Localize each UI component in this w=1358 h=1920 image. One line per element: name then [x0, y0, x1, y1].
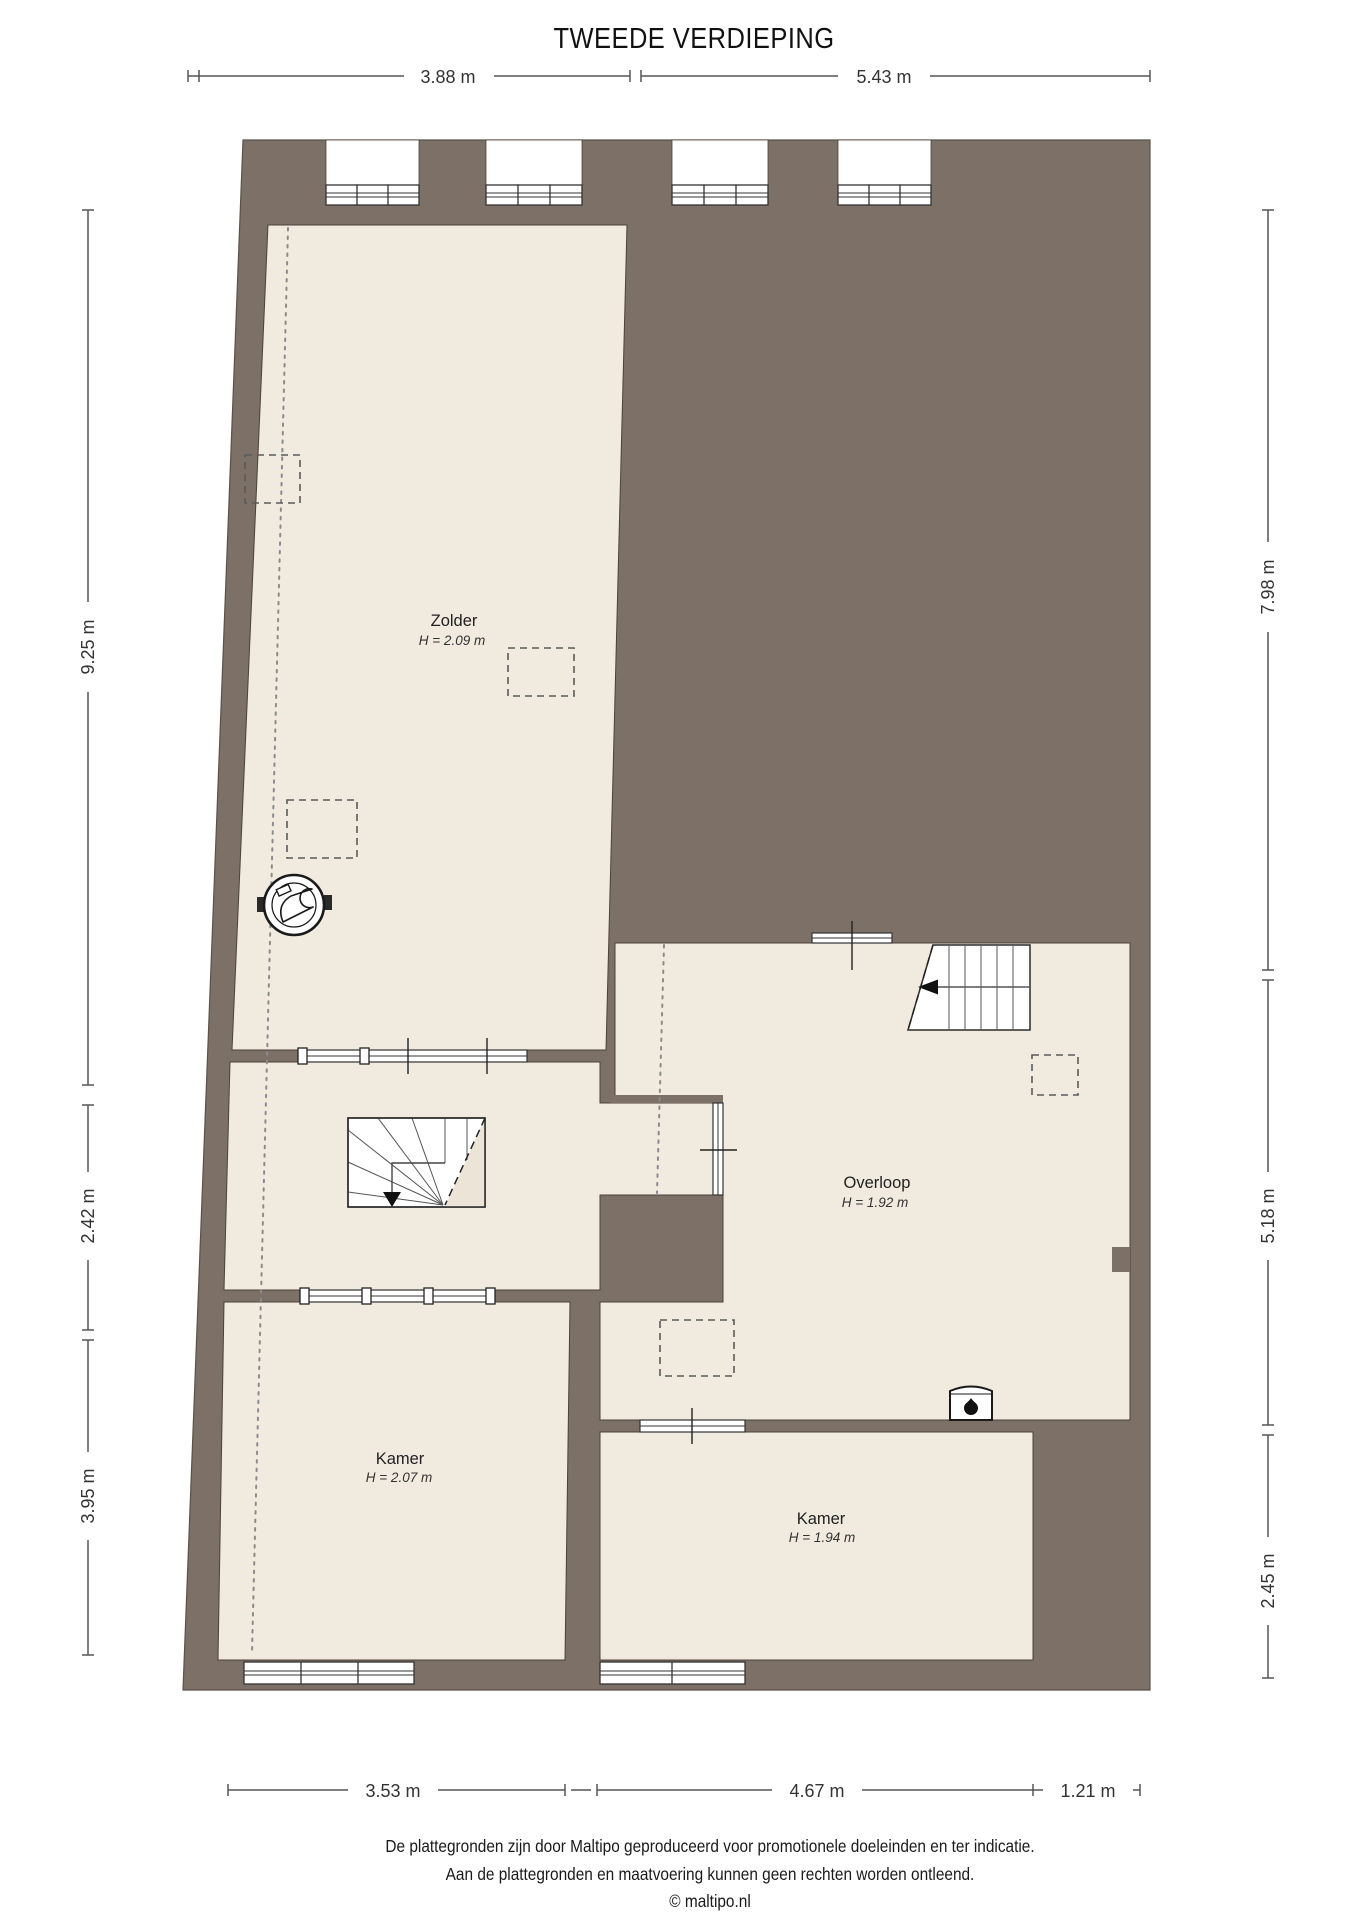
- footer-line-2: Aan de plattegronden en maatvoering kunn…: [446, 1865, 975, 1884]
- dim-label-bottom-1: 3.53 m: [365, 1781, 420, 1801]
- room-label-kamer-left: Kamer: [376, 1450, 425, 1468]
- room-label-overloop: Overloop: [844, 1174, 911, 1192]
- room-label-kamer-right: Kamer: [797, 1510, 846, 1528]
- wood-stove-icon: [950, 1387, 992, 1421]
- room-height-kamer-left: H = 2.07 m: [366, 1470, 432, 1485]
- dim-label-left-3: 3.95 m: [78, 1468, 98, 1523]
- dim-label-top-2: 5.43 m: [856, 67, 911, 87]
- window-glazing: [486, 140, 582, 205]
- dim-label-bottom-2: 4.67 m: [789, 1781, 844, 1801]
- kamer-right-floor: [600, 1432, 1033, 1660]
- dim-label-right-3: 2.45 m: [1258, 1553, 1278, 1608]
- room-label-zolder: Zolder: [431, 612, 478, 630]
- staircase-winder-icon: [348, 1118, 485, 1207]
- window-glazing: [300, 1288, 495, 1304]
- dim-label-bottom-3: 1.21 m: [1060, 1781, 1115, 1801]
- floor-plan-page: TWEEDE VERDIEPING: [0, 0, 1358, 1920]
- window-glazing: [600, 1662, 745, 1684]
- dim-label-right-1: 7.98 m: [1258, 559, 1278, 614]
- dim-label-left-1: 9.25 m: [78, 619, 98, 674]
- room-height-kamer-right: H = 1.94 m: [789, 1530, 855, 1545]
- window-glazing: [672, 140, 768, 205]
- window-glazing: [326, 140, 419, 205]
- floor-plan-canvas: TWEEDE VERDIEPING: [0, 0, 1358, 1920]
- footer-copyright: © maltipo.nl: [669, 1892, 750, 1911]
- room-height-overloop: H = 1.92 m: [842, 1195, 908, 1210]
- page-title: TWEEDE VERDIEPING: [554, 21, 835, 54]
- wall-stub: [1112, 1247, 1130, 1272]
- footer-line-1: De plattegronden zijn door Maltipo gepro…: [385, 1837, 1034, 1856]
- window-glazing: [838, 140, 931, 205]
- window-glazing: [244, 1662, 414, 1684]
- room-height-zolder: H = 2.09 m: [419, 633, 485, 648]
- dim-label-right-2: 5.18 m: [1258, 1188, 1278, 1243]
- interior-wall: [610, 1095, 723, 1103]
- dim-label-top-1: 3.88 m: [420, 67, 475, 87]
- dim-label-left-2: 2.42 m: [78, 1188, 98, 1243]
